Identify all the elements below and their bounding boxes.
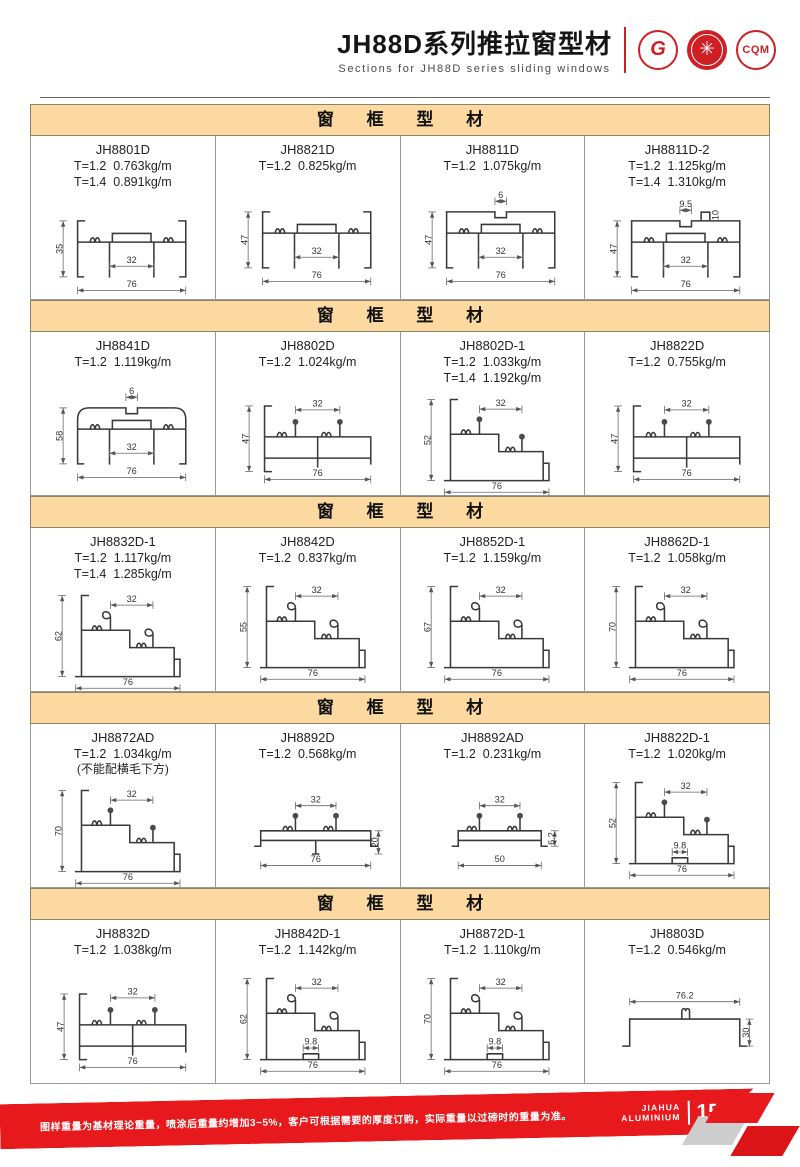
svg-text:32: 32 [682, 398, 692, 408]
profile-code: JH8821D [281, 141, 335, 158]
svg-text:9.8: 9.8 [304, 1036, 317, 1046]
profile-code: JH8842D [281, 533, 335, 550]
svg-text:76: 76 [312, 467, 322, 477]
svg-text:9.5: 9.5 [679, 199, 692, 209]
profile-spec: T=1.4 0.891kg/m [74, 174, 172, 190]
svg-text:76: 76 [126, 279, 136, 289]
svg-text:76: 76 [492, 667, 502, 677]
profile-code: JH8872D-1 [459, 925, 525, 942]
profile-drawing: 473276 [216, 370, 400, 495]
profile-code: JH8841D [96, 337, 150, 354]
svg-text:32: 32 [310, 794, 320, 804]
profile-drawing: 9.8703276 [401, 958, 585, 1083]
profile-code: JH8802D [281, 337, 335, 354]
profile-drawing: 473276 [585, 370, 769, 495]
profile-spec: T=1.2 1.125kg/m [628, 158, 726, 174]
svg-text:32: 32 [126, 789, 136, 799]
page-header: JH88D系列推拉窗型材 Sections for JH88D series s… [337, 24, 776, 75]
quality-emblem-icon: ✳ [687, 30, 727, 70]
profile-spec: T=1.2 0.231kg/m [444, 746, 542, 762]
profile-cell: JH8872D-1 T=1.2 1.110kg/m 9.8703276 [401, 920, 586, 1083]
certification-logos: G ✳ CQM [638, 30, 776, 70]
svg-text:32: 32 [127, 986, 137, 996]
svg-text:58: 58 [55, 430, 65, 440]
svg-text:52: 52 [423, 435, 433, 445]
svg-text:62: 62 [54, 631, 64, 641]
profile-cell: JH8832D T=1.2 1.038kg/m 473276 [31, 920, 216, 1083]
profile-catalog: 窗 框 型 材 JH8801D T=1.2 0.763kg/m T=1.4 0.… [30, 104, 770, 1084]
profile-spec: T=1.4 1.310kg/m [628, 174, 726, 190]
svg-text:10: 10 [711, 210, 721, 220]
profile-spec: T=1.2 0.837kg/m [259, 550, 357, 566]
svg-text:32: 32 [311, 245, 321, 255]
svg-text:76: 76 [681, 279, 691, 289]
section-row: JH8801D T=1.2 0.763kg/m T=1.4 0.891kg/m … [30, 136, 770, 300]
svg-text:76: 76 [307, 667, 317, 677]
svg-text:70: 70 [54, 826, 64, 836]
footer-band: 图样重量为基材理论重量，喷涂后重量约增加3~5%，客户可根据需要的厚度订购，实际… [0, 1088, 754, 1149]
profile-spec: T=1.2 0.568kg/m [259, 746, 357, 762]
svg-text:76: 76 [677, 863, 687, 873]
svg-text:6: 6 [129, 385, 134, 395]
profile-code: JH8832D-1 [90, 533, 156, 550]
profile-cell: JH8822D-1 T=1.2 1.020kg/m 9.8523276 [585, 724, 769, 887]
svg-text:62: 62 [238, 1013, 248, 1023]
profile-cell: JH8811D T=1.2 1.075kg/m 6473276 [401, 136, 586, 299]
header-divider [624, 27, 626, 73]
svg-text:47: 47 [239, 234, 249, 244]
profile-drawing: 322076 [216, 762, 400, 887]
cqm-certification-icon: CQM [736, 30, 776, 70]
profile-cell: JH8892AD T=1.2 0.231kg/m 326.250 [401, 724, 586, 887]
section-header: 窗 框 型 材 [30, 300, 770, 332]
profile-code: JH8811D-2 [645, 141, 710, 158]
profile-drawing: 353276 [31, 190, 215, 302]
svg-text:47: 47 [610, 433, 620, 443]
svg-text:76: 76 [307, 1059, 317, 1069]
profile-cell: JH8811D-2 T=1.2 1.125kg/m T=1.4 1.310kg/… [585, 136, 769, 299]
svg-text:32: 32 [496, 398, 506, 408]
svg-text:76: 76 [492, 481, 502, 491]
profile-cell: JH8821D T=1.2 0.825kg/m 473276 [216, 136, 401, 299]
profile-drawing: 6583276 [31, 370, 215, 495]
profile-code: JH8842D-1 [275, 925, 341, 942]
svg-text:32: 32 [681, 780, 691, 790]
svg-text:76: 76 [311, 270, 321, 280]
profile-cell: JH8852D-1 T=1.2 1.159kg/m 673276 [401, 528, 586, 691]
page-subtitle: Sections for JH88D series sliding window… [337, 63, 612, 75]
cqm-letters: CQM [742, 44, 769, 56]
svg-text:76: 76 [682, 467, 692, 477]
profile-spec: T=1.2 1.024kg/m [259, 354, 357, 370]
svg-text:76: 76 [123, 872, 133, 882]
profile-drawing: 76.230 [585, 958, 769, 1083]
profile-cell: JH8802D T=1.2 1.024kg/m 473276 [216, 332, 401, 495]
profile-spec: T=1.2 1.038kg/m [74, 942, 172, 958]
profile-spec: T=1.2 1.159kg/m [444, 550, 542, 566]
gb-certification-icon: G [638, 30, 678, 70]
profile-spec: T=1.2 1.033kg/m [444, 354, 542, 370]
profile-spec: T=1.2 1.110kg/m [444, 942, 541, 958]
svg-text:6.2: 6.2 [547, 832, 557, 845]
svg-text:35: 35 [55, 244, 65, 254]
emblem-symbol: ✳ [691, 34, 723, 66]
profile-spec: T=1.4 1.285kg/m [74, 566, 172, 582]
profile-cell: JH8862D-1 T=1.2 1.058kg/m 703276 [585, 528, 769, 691]
page-title: JH88D系列推拉窗型材 [337, 24, 612, 61]
svg-text:32: 32 [495, 794, 505, 804]
svg-text:76: 76 [127, 1055, 137, 1065]
profile-spec: T=1.2 1.020kg/m [628, 746, 726, 762]
svg-text:47: 47 [424, 234, 434, 244]
svg-text:76.2: 76.2 [676, 990, 694, 1000]
svg-text:32: 32 [126, 441, 136, 451]
brand-line2: ALUMINIUM [621, 1113, 681, 1124]
svg-text:76: 76 [126, 466, 136, 476]
profile-code: JH8892D [281, 729, 335, 746]
section-header: 窗 框 型 材 [30, 104, 770, 136]
svg-text:50: 50 [495, 854, 505, 864]
profile-code: JH8811D [466, 141, 519, 158]
section-row: JH8841D T=1.2 1.119kg/m 6583276 JH8802D … [30, 332, 770, 496]
svg-text:32: 32 [311, 976, 321, 986]
svg-text:67: 67 [423, 621, 433, 631]
profile-spec: T=1.2 1.058kg/m [628, 550, 726, 566]
profile-spec: T=1.2 1.034kg/m [74, 746, 172, 762]
title-block: JH88D系列推拉窗型材 Sections for JH88D series s… [337, 24, 612, 75]
profile-code: JH8822D-1 [644, 729, 710, 746]
profile-spec: T=1.4 1.192kg/m [444, 370, 542, 386]
profile-drawing: 9.8523276 [585, 762, 769, 887]
profile-code: JH8862D-1 [644, 533, 710, 550]
brand-shape-red-bottom [730, 1126, 799, 1156]
profile-drawing: 9.8623276 [216, 958, 400, 1083]
header-rule [40, 97, 770, 98]
svg-text:76: 76 [677, 667, 687, 677]
profile-code: JH8801D [96, 141, 150, 158]
svg-text:76: 76 [310, 854, 320, 864]
profile-spec: T=1.2 1.119kg/m [75, 354, 172, 370]
profile-code: JH8803D [650, 925, 704, 942]
svg-text:76: 76 [492, 1059, 502, 1069]
profile-drawing: 6473276 [401, 174, 585, 299]
profile-code: JH8832D [96, 925, 150, 942]
profile-drawing: 9.547327610 [585, 190, 769, 302]
profile-drawing: 523276 [401, 386, 585, 498]
profile-cell: JH8841D T=1.2 1.119kg/m 6583276 [31, 332, 216, 495]
profile-drawing: 623276 [31, 582, 215, 694]
profile-cell: JH8842D T=1.2 0.837kg/m 553276 [216, 528, 401, 691]
footer-note: 图样重量为基材理论重量，喷涂后重量约增加3~5%，客户可根据需要的厚度订购，实际… [40, 1107, 572, 1133]
brand-name: JIAHUA ALUMINIUM [621, 1103, 681, 1124]
profile-cell: JH8892D T=1.2 0.568kg/m 322076 [216, 724, 401, 887]
profile-drawing: 473276 [216, 174, 400, 299]
svg-text:30: 30 [741, 1027, 751, 1037]
section-row: JH8832D T=1.2 1.038kg/m 473276 JH8842D-1… [30, 920, 770, 1084]
profile-cell: JH8842D-1 T=1.2 1.142kg/m 9.8623276 [216, 920, 401, 1083]
profile-cell: JH8802D-1 T=1.2 1.033kg/m T=1.4 1.192kg/… [401, 332, 586, 495]
profile-cell: JH8872AD T=1.2 1.034kg/m (不能配横毛下方) 70327… [31, 724, 216, 887]
svg-text:47: 47 [609, 244, 619, 254]
svg-text:32: 32 [496, 245, 506, 255]
svg-text:55: 55 [238, 621, 248, 631]
gb-letter: G [650, 38, 666, 61]
section-header: 窗 框 型 材 [30, 888, 770, 920]
svg-text:32: 32 [312, 398, 322, 408]
profile-cell: JH8822D T=1.2 0.755kg/m 473276 [585, 332, 769, 495]
svg-text:32: 32 [496, 976, 506, 986]
svg-text:32: 32 [681, 255, 691, 265]
profile-cell: JH8801D T=1.2 0.763kg/m T=1.4 0.891kg/m … [31, 136, 216, 299]
section-row: JH8832D-1 T=1.2 1.117kg/m T=1.4 1.285kg/… [30, 528, 770, 692]
profile-cell: JH8832D-1 T=1.2 1.117kg/m T=1.4 1.285kg/… [31, 528, 216, 691]
profile-code: JH8852D-1 [459, 533, 525, 550]
profile-code: JH8872AD [91, 729, 154, 746]
svg-text:20: 20 [370, 837, 380, 847]
profile-code: JH8822D [650, 337, 704, 354]
section-row: JH8872AD T=1.2 1.034kg/m (不能配横毛下方) 70327… [30, 724, 770, 888]
profile-cell: JH8803D T=1.2 0.546kg/m 76.230 [585, 920, 769, 1083]
profile-drawing: 553276 [216, 566, 400, 691]
profile-spec: T=1.2 0.825kg/m [259, 158, 357, 174]
profile-drawing: 326.250 [401, 762, 585, 887]
profile-spec: T=1.2 1.142kg/m [259, 942, 357, 958]
svg-text:9.8: 9.8 [489, 1036, 502, 1046]
svg-text:32: 32 [126, 594, 136, 604]
profile-spec: T=1.2 1.117kg/m [75, 550, 172, 566]
profile-spec: T=1.2 0.763kg/m [74, 158, 172, 174]
section-header: 窗 框 型 材 [30, 496, 770, 528]
svg-text:47: 47 [55, 1021, 65, 1031]
brand-divider [687, 1100, 690, 1124]
profile-code: JH8802D-1 [459, 337, 525, 354]
profile-spec: T=1.2 0.546kg/m [628, 942, 726, 958]
svg-text:70: 70 [608, 621, 618, 631]
svg-text:9.8: 9.8 [674, 840, 687, 850]
svg-text:70: 70 [423, 1013, 433, 1023]
svg-text:32: 32 [311, 584, 321, 594]
profile-drawing: 673276 [401, 566, 585, 691]
svg-text:32: 32 [126, 255, 136, 265]
profile-drawing: 473276 [31, 958, 215, 1083]
profile-drawing: 703276 [31, 777, 215, 889]
profile-drawing: 703276 [585, 566, 769, 691]
svg-text:6: 6 [499, 189, 504, 199]
profile-spec: T=1.2 1.075kg/m [444, 158, 542, 174]
svg-text:76: 76 [496, 270, 506, 280]
svg-text:76: 76 [123, 677, 133, 687]
svg-text:32: 32 [681, 584, 691, 594]
profile-spec: T=1.2 0.755kg/m [628, 354, 726, 370]
svg-text:32: 32 [496, 584, 506, 594]
section-header: 窗 框 型 材 [30, 692, 770, 724]
profile-note: (不能配横毛下方) [77, 762, 169, 777]
svg-text:52: 52 [608, 817, 618, 827]
profile-code: JH8892AD [461, 729, 524, 746]
svg-text:47: 47 [240, 433, 250, 443]
